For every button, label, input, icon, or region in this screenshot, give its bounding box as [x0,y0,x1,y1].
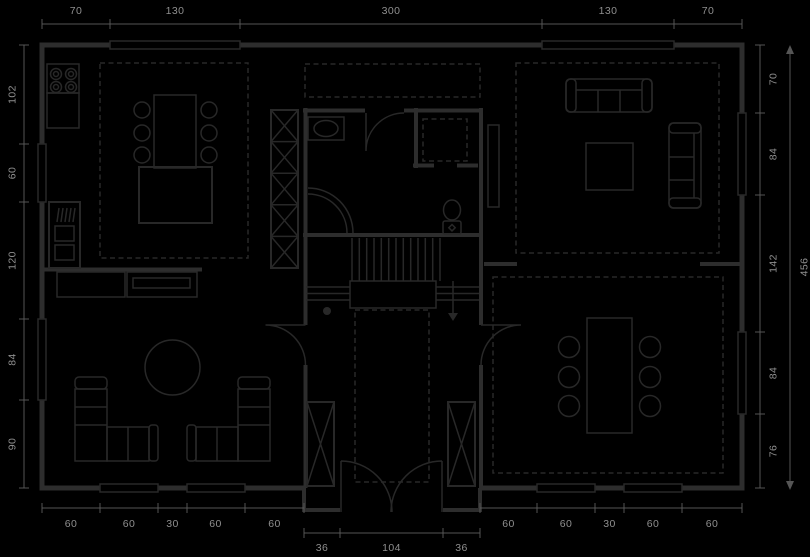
corner-sofa-left [75,377,158,461]
floor-plan-drawing: 70 130 300 130 70 102 60 120 84 90 70 84… [0,0,810,557]
dim-label-bottom-left-2: 30 [166,518,178,530]
corner-sofa-right [187,377,270,461]
dim-label-bottom-right-3: 60 [647,518,659,530]
window-bottom-right-2 [624,484,682,492]
dim-label-bottom-right-1: 60 [560,518,572,530]
sink-icon [308,117,344,140]
hall-runner-rug [355,310,429,482]
fridge-icon [49,202,80,268]
dim-label-bottom-right-0: 60 [502,518,514,530]
kitchen-wardrobe-column [271,110,298,268]
kitchen-table [154,95,196,168]
dimension-bottom-right: 60 60 30 60 60 [480,503,742,530]
dim-label-entry-1: 104 [382,542,401,554]
window-bottom-left-2 [187,484,245,492]
living-rug [516,63,719,253]
stair-treads-upper [352,238,440,281]
dim-label-right-0: 70 [768,73,780,85]
toilet-icon [443,200,461,234]
dim-label-right-4: 76 [768,445,780,457]
bathroom-door [366,113,404,151]
dim-label-bottom-left-3: 60 [209,518,221,530]
dining-table [587,318,632,433]
window-bottom-right-1 [537,484,595,492]
dining-chairs [559,337,661,417]
top-hall-closet-dashed [305,64,480,97]
kitchen [47,63,298,297]
sideboard-1 [57,272,125,297]
dimension-left: 102 60 120 84 90 [7,45,29,488]
dim-label-top-4: 70 [702,5,714,17]
entry-hall [307,310,475,486]
shower-closet-dashed [423,119,467,161]
sofa-right [669,123,701,208]
entry-wardrobe-right [448,402,475,486]
dining-room [493,277,723,473]
dim-label-left-3: 84 [7,353,19,365]
living-room [488,63,719,253]
dim-label-entry-0: 36 [316,542,328,554]
sideboard-2 [127,272,197,297]
dim-label-bottom-right-4: 60 [706,518,718,530]
dimension-bottom-left: 60 60 30 60 60 [42,503,304,530]
dining-door [481,325,521,365]
window-top-left [110,41,240,49]
dim-label-bottom-right-2: 30 [603,518,615,530]
dim-label-right-3: 84 [768,367,780,379]
window-right-upper [738,113,746,195]
lounge-door [266,325,306,365]
bathroom [308,117,467,234]
dim-label-right-2: 142 [768,254,780,273]
dim-label-right-total: 456 [799,258,810,277]
living-radiator [488,125,499,207]
dim-label-entry-2: 36 [455,542,467,554]
lounge [75,340,270,461]
dim-label-left-0: 102 [7,85,19,104]
dim-label-bottom-left-0: 60 [65,518,77,530]
corner-shower-icon [308,188,353,233]
dim-label-top-3: 130 [599,5,618,17]
stair-treads-left [306,287,350,300]
dim-label-top-1: 130 [166,5,185,17]
dim-label-left-2: 120 [7,251,19,270]
stair-landing [350,281,436,308]
window-top-right [542,41,674,49]
dimension-top: 70 130 300 130 70 [42,5,742,29]
dim-label-top-2: 300 [382,5,401,17]
window-left-upper [38,144,46,202]
kitchen-island [139,167,212,223]
kitchen-chairs [134,102,217,163]
coffee-table [586,143,633,190]
dim-label-bottom-left-1: 60 [123,518,135,530]
window-bottom-left-1 [100,484,158,492]
dim-label-left-4: 90 [7,438,19,450]
stair-treads-right [436,287,479,300]
window-right-lower [738,332,746,414]
staircase [306,238,479,321]
floor-plan-page: 70 130 300 130 70 102 60 120 84 90 70 84… [0,0,810,557]
windows [38,41,746,492]
kitchen-rug [100,63,248,258]
round-table [145,340,200,395]
entry-double-door [341,461,442,512]
dining-rug [493,277,723,473]
dim-label-left-1: 60 [7,167,19,179]
dimension-right-total: 456 [786,45,810,490]
window-left-lower [38,319,46,400]
dimension-entry: 36 104 36 [304,528,480,554]
dim-label-right-1: 84 [768,148,780,160]
dim-label-top-0: 70 [70,5,82,17]
dim-label-bottom-left-4: 60 [268,518,280,530]
stove-icon [47,64,79,128]
sofa-top [566,79,652,112]
entry-wardrobe-left [307,402,334,486]
stair-start-post [323,307,331,315]
dimension-right: 70 84 142 84 76 456 [755,45,810,490]
